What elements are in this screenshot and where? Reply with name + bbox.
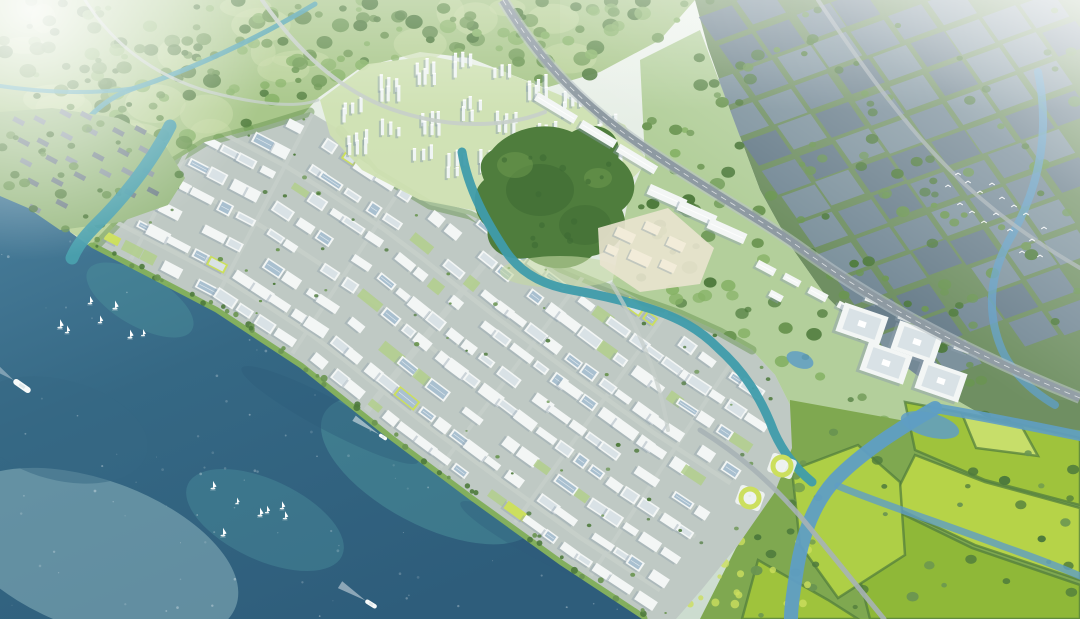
shore-tree <box>281 346 285 350</box>
street-tree <box>449 302 452 304</box>
shore-tree <box>527 537 533 543</box>
sea-sparkle <box>180 542 181 543</box>
sea-sparkle <box>249 414 251 416</box>
tree <box>754 534 761 540</box>
sea-sparkle <box>204 541 206 543</box>
street-tree <box>537 535 541 538</box>
sea-sparkle <box>399 572 402 575</box>
apartment-tower <box>379 119 384 138</box>
sea-sparkle <box>330 530 332 532</box>
sea-sparkle <box>126 292 128 294</box>
tree <box>1003 578 1011 584</box>
bush <box>770 567 776 573</box>
sea-sparkle <box>116 454 117 455</box>
tree <box>941 583 947 588</box>
tree <box>872 456 883 465</box>
sea-sparkle <box>65 306 67 308</box>
tree <box>1060 518 1070 526</box>
sea-sparkle <box>24 433 26 435</box>
tree <box>907 592 919 602</box>
sea-sparkle <box>94 490 97 493</box>
shore-tree <box>537 540 543 546</box>
tree <box>1024 450 1031 456</box>
sea-sparkle <box>161 468 164 471</box>
tree <box>1015 500 1026 509</box>
shore-tree <box>560 555 564 559</box>
street-tree <box>730 404 733 406</box>
apartment-tower <box>411 148 416 163</box>
sea-sparkle <box>196 514 198 516</box>
apartment-tower <box>420 149 425 162</box>
street-tree <box>630 573 635 577</box>
tree <box>800 460 807 465</box>
sea-sparkle <box>11 605 12 606</box>
sea-sparkle <box>225 400 228 403</box>
shore-tree <box>532 533 537 538</box>
street-tree <box>543 307 546 309</box>
shore-tree <box>209 300 213 304</box>
sea-sparkle <box>124 515 125 516</box>
sea-sparkle <box>165 610 167 612</box>
street-tree <box>302 175 307 179</box>
tree <box>853 605 858 609</box>
shore-tree <box>225 309 230 314</box>
street-tree <box>616 443 621 447</box>
bush <box>731 600 740 609</box>
shore-tree <box>316 374 320 378</box>
sea-sparkle <box>180 579 182 581</box>
street-tree <box>484 353 488 356</box>
street-tree <box>314 294 318 297</box>
street-tree <box>293 154 296 156</box>
sea-sparkle <box>337 549 340 552</box>
sea-sparkle <box>405 597 407 599</box>
street-tree <box>546 339 551 343</box>
bush <box>734 589 740 595</box>
sea-sparkle <box>166 505 167 506</box>
street-tree <box>273 283 276 285</box>
aerial-rendering-figure <box>0 0 1080 619</box>
sea-sparkle <box>211 451 214 454</box>
apartment-tower <box>354 140 359 157</box>
street-tree <box>465 430 467 432</box>
apartment-tower <box>387 122 392 137</box>
tree <box>766 550 777 559</box>
shore-tree <box>447 476 451 480</box>
bush <box>804 581 811 588</box>
sea-sparkle <box>457 605 459 607</box>
street-tree <box>352 218 355 221</box>
sea-sparkle <box>113 501 114 502</box>
street-tree <box>255 312 257 314</box>
tree <box>881 484 887 489</box>
tree <box>999 476 1010 485</box>
tree <box>924 561 935 569</box>
street-tree <box>699 541 703 544</box>
apartment-tower <box>428 144 433 161</box>
sea-sparkle <box>265 350 268 353</box>
sea-sparkle <box>347 454 350 457</box>
sea-sparkle <box>213 531 215 533</box>
apartment-tower <box>469 110 474 124</box>
street-tree <box>465 350 468 352</box>
tree <box>758 613 764 618</box>
sea-sparkle <box>234 507 236 509</box>
sea-sparkle <box>234 578 237 581</box>
sea-sparkle <box>176 606 179 609</box>
street-tree <box>324 289 327 291</box>
street-tree <box>664 612 667 614</box>
shore-tree <box>353 404 360 411</box>
sea-sparkle <box>203 467 205 469</box>
street-tree <box>647 518 650 521</box>
sea-sparkle <box>617 609 618 610</box>
bush <box>799 600 807 608</box>
shore-tree <box>160 279 164 283</box>
sea-sparkle <box>407 488 409 490</box>
street-tree <box>276 248 280 251</box>
shore-tree <box>221 304 226 309</box>
shore-tree <box>321 375 328 382</box>
sea-sparkle <box>45 307 46 308</box>
sea-sparkle <box>197 435 199 437</box>
sea-sparkle <box>427 486 429 488</box>
apartment-tower <box>421 121 426 137</box>
shore-tree <box>139 264 145 270</box>
sea-sparkle <box>566 606 568 608</box>
sea-sparkle <box>319 615 321 617</box>
shore-tree <box>437 470 442 475</box>
tree <box>829 429 838 436</box>
street-tree <box>495 455 499 458</box>
sea-sparkle <box>77 415 79 417</box>
sea-sparkle <box>408 595 410 597</box>
shore-tree <box>465 483 470 488</box>
street-tree <box>317 192 320 195</box>
shore-tree <box>598 577 604 583</box>
tree <box>1067 465 1079 475</box>
street-tree <box>415 214 418 217</box>
sea-sparkle <box>393 464 395 466</box>
tree <box>793 483 805 493</box>
tree <box>965 484 971 488</box>
sea-sparkle <box>39 565 42 568</box>
tree <box>883 512 888 516</box>
street-tree <box>601 514 604 516</box>
shore-tree <box>372 420 378 426</box>
shore-tree <box>190 292 195 297</box>
street-tree <box>248 135 251 137</box>
sea-sparkle <box>256 349 257 350</box>
sea-sparkle <box>91 317 93 319</box>
street-tree <box>446 337 449 339</box>
street-tree <box>245 269 248 272</box>
shore-tree <box>112 251 117 256</box>
sea-sparkle <box>254 469 257 472</box>
street-tree <box>321 247 325 250</box>
sea-sparkle <box>277 532 278 533</box>
street-tree <box>414 342 419 346</box>
sea-sparkle <box>338 545 339 546</box>
sea-sparkle <box>124 603 126 605</box>
tree <box>1038 483 1044 488</box>
shore-tree <box>641 608 645 612</box>
street-tree <box>678 529 682 532</box>
sea-sparkle <box>492 560 493 561</box>
sea-sparkle <box>41 398 43 400</box>
tree <box>965 555 976 564</box>
street-tree <box>547 400 550 403</box>
sea-sparkle <box>541 575 543 577</box>
sea-sparkle <box>244 479 245 480</box>
street-tree <box>511 472 514 474</box>
apartment-tower <box>362 138 367 157</box>
tree <box>1066 588 1078 597</box>
street-tree <box>446 272 450 275</box>
sea-sparkle <box>332 600 333 601</box>
shore-tree <box>233 312 238 317</box>
street-tree <box>634 449 639 453</box>
street-tree <box>734 527 739 531</box>
apartment-tower <box>445 167 450 181</box>
street-tree <box>263 190 268 194</box>
sea-sparkle <box>224 467 227 470</box>
sea-sparkle <box>20 512 22 514</box>
street-tree <box>302 118 305 120</box>
sea-sparkle <box>593 603 595 605</box>
tree <box>751 566 763 575</box>
street-tree <box>259 300 262 302</box>
street-tree <box>283 194 287 197</box>
sea-sparkle <box>23 495 25 497</box>
street-tree <box>647 498 651 502</box>
sea-sparkle <box>310 431 313 434</box>
shore-tree <box>249 326 254 331</box>
sea-sparkle <box>135 481 137 483</box>
shore-tree <box>571 567 578 574</box>
street-tree <box>587 524 592 528</box>
bush <box>737 570 744 577</box>
apartment-tower <box>341 108 346 125</box>
sea-sparkle <box>199 473 202 476</box>
street-tree <box>218 257 223 261</box>
sea-sparkle <box>417 576 420 579</box>
street-tree <box>526 511 531 515</box>
tree <box>957 503 963 508</box>
tree <box>1038 536 1046 543</box>
street-tree <box>560 469 563 471</box>
tree <box>1066 495 1074 501</box>
apartment-tower <box>435 122 440 137</box>
sea-sparkle <box>58 572 59 573</box>
street-tree <box>493 302 498 306</box>
sea-sparkle <box>53 551 55 553</box>
sea-sparkle <box>395 478 396 479</box>
sea-sparkle <box>101 465 103 467</box>
sea-sparkle <box>216 374 219 377</box>
bush <box>698 595 703 600</box>
apartment-tower <box>346 143 351 157</box>
sea-sparkle <box>285 435 287 437</box>
tree <box>968 467 978 475</box>
bush <box>711 599 719 607</box>
sea-sparkle <box>249 339 251 341</box>
bush <box>717 574 721 578</box>
tree <box>787 528 795 534</box>
shore-tree <box>394 432 398 436</box>
shore-tree <box>402 444 408 450</box>
street-tree <box>414 314 417 317</box>
sea-sparkle <box>301 581 303 583</box>
tree <box>812 562 819 568</box>
street-tree <box>606 468 610 471</box>
shore-tree <box>470 489 475 494</box>
aerial-rendering-svg <box>0 0 1080 619</box>
sea-sparkle <box>156 457 157 458</box>
apartment-tower <box>445 153 450 168</box>
sea-sparkle <box>256 470 259 473</box>
sea-sparkle <box>314 394 316 396</box>
street-tree <box>384 248 388 251</box>
sea-sparkle <box>316 455 318 457</box>
shore-tree <box>421 458 427 464</box>
shore-tree <box>154 274 161 281</box>
sea-sparkle <box>403 532 404 533</box>
sea-sparkle <box>211 604 213 606</box>
